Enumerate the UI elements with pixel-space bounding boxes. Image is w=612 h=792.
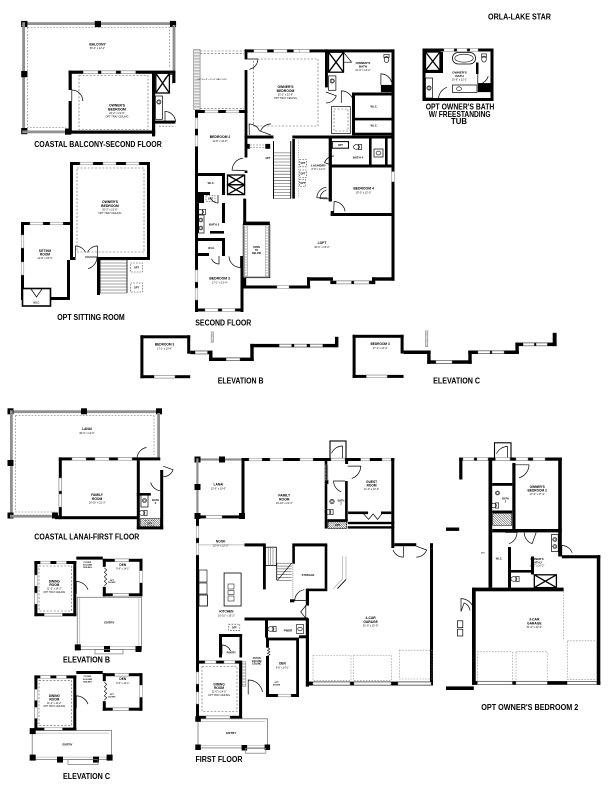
svg-text:DOORS: DOORS	[108, 697, 116, 699]
svg-text:8'-8" x 14'-0": 8'-8" x 14'-0"	[312, 168, 326, 171]
svg-text:VOLUME: VOLUME	[83, 679, 93, 681]
svg-text:10'-10" x 15'-2": 10'-10" x 15'-2"	[218, 614, 235, 617]
svg-text:31'-9" x 22'-9": 31'-9" x 22'-9"	[363, 625, 378, 628]
svg-text:ROOM: ROOM	[49, 698, 59, 702]
svg-text:ROOM: ROOM	[214, 686, 224, 690]
svg-text:ROOM: ROOM	[92, 497, 103, 501]
svg-text:BEDROOM 3: BEDROOM 3	[155, 343, 175, 347]
svg-text:15'-0" x 12'-0": 15'-0" x 12'-0"	[356, 192, 371, 195]
svg-text:NOOK: NOOK	[216, 540, 226, 544]
svg-text:36'-0" x 12'-0": 36'-0" x 12'-0"	[79, 432, 94, 435]
svg-text:PWDR: PWDR	[284, 628, 293, 632]
svg-text:FOYER: FOYER	[84, 676, 92, 678]
svg-text:11'-8" x 15'-0": 11'-8" x 15'-0"	[37, 257, 52, 260]
svg-text:17'-1" x 13'-4": 17'-1" x 13'-4"	[157, 347, 172, 350]
svg-text:BEDROOM 3: BEDROOM 3	[370, 342, 390, 346]
svg-text:OPT TRAY CEILING: OPT TRAY CEILING	[43, 591, 65, 594]
svg-text:ENTRY: ENTRY	[226, 731, 236, 735]
svg-text:COASTAL LANAI-FIRST FLOOR: COASTAL LANAI-FIRST FLOOR	[34, 532, 140, 542]
svg-text:W.I.C.: W.I.C.	[208, 182, 215, 185]
svg-text:OPT: OPT	[338, 144, 343, 147]
svg-text:BEDROOM: BEDROOM	[101, 204, 119, 208]
svg-text:12'-2" x 10'-2": 12'-2" x 10'-2"	[530, 564, 545, 567]
svg-text:TUB: TUB	[451, 116, 467, 126]
svg-text:30'-0" x 15'-0": 30'-0" x 15'-0"	[314, 246, 329, 249]
svg-text:FOYER: FOYER	[253, 658, 261, 660]
svg-text:OPT TRAY CEILING: OPT TRAY CEILING	[274, 97, 297, 100]
svg-text:KITCHEN: KITCHEN	[219, 610, 234, 614]
svg-text:31'-0" x 22'-0": 31'-0" x 22'-0"	[527, 626, 542, 629]
svg-text:SECOND FLOOR: SECOND FLOOR	[195, 317, 252, 327]
svg-text:LANAI: LANAI	[214, 483, 224, 487]
svg-text:9'-6" x 14'-1": 9'-6" x 14'-1"	[116, 682, 130, 685]
svg-text:19'-10" x 21'-3": 19'-10" x 21'-3"	[276, 502, 293, 505]
svg-text:9'-6" x 14'-1": 9'-6" x 14'-1"	[276, 666, 290, 669]
svg-text:W.I.C.: W.I.C.	[496, 558, 503, 561]
svg-text:ROOM: ROOM	[279, 497, 290, 501]
svg-text:OPT: OPT	[266, 157, 271, 160]
svg-text:BEDROOM: BEDROOM	[108, 107, 126, 111]
svg-text:OPT: OPT	[300, 182, 305, 185]
svg-text:ORLA-LAKE STAR: ORLA-LAKE STAR	[488, 13, 551, 22]
svg-text:BEDROOM 3: BEDROOM 3	[209, 277, 230, 281]
svg-text:ELEVATION B: ELEVATION B	[218, 375, 264, 385]
svg-text:OPT TRAY CEILING: OPT TRAY CEILING	[208, 694, 230, 697]
svg-text:VOLUME: VOLUME	[252, 661, 262, 663]
svg-text:BEDROOM 4: BEDROOM 4	[353, 187, 374, 191]
svg-text:OPT TRAY CEILING: OPT TRAY CEILING	[99, 212, 122, 215]
svg-text:STORAGE: STORAGE	[302, 573, 315, 577]
svg-text:ROOM: ROOM	[367, 484, 377, 488]
svg-text:OPT TRAY CEILING: OPT TRAY CEILING	[106, 116, 129, 119]
svg-text:VOLUME: VOLUME	[83, 565, 93, 567]
svg-text:DOORS: DOORS	[108, 582, 116, 584]
svg-text:ENTRY: ENTRY	[104, 621, 114, 625]
svg-text:ELEVATION B: ELEVATION B	[63, 655, 110, 665]
svg-text:BALCONY: BALCONY	[89, 42, 106, 46]
svg-text:10'-6" x 12'-2": 10'-6" x 12'-2"	[355, 69, 370, 72]
svg-text:OPT: OPT	[301, 162, 306, 165]
svg-text:9'-6" x 14'-1": 9'-6" x 14'-1"	[116, 567, 130, 570]
svg-text:CEILING: CEILING	[252, 664, 262, 666]
svg-text:OPT: OPT	[134, 287, 139, 290]
svg-text:GARAGE: GARAGE	[363, 620, 378, 624]
svg-text:CEILING: CEILING	[83, 567, 92, 569]
svg-text:FIRST FLOOR: FIRST FLOOR	[196, 754, 244, 764]
svg-text:PANTRY: PANTRY	[227, 651, 237, 654]
svg-text:OPT SITTING ROOM: OPT SITTING ROOM	[57, 312, 125, 322]
svg-text:BATH: BATH	[359, 65, 368, 69]
svg-text:OPT: OPT	[134, 267, 139, 270]
svg-text:56'-4" x 12'-2": 56'-4" x 12'-2"	[90, 47, 105, 50]
svg-text:17'-0" x 17'-2": 17'-0" x 17'-2"	[530, 493, 545, 496]
svg-text:LAUNDRY: LAUNDRY	[311, 164, 327, 168]
svg-text:MUD: MUD	[481, 553, 486, 555]
svg-text:FOYER: FOYER	[84, 562, 92, 564]
svg-text:OPT: OPT	[208, 198, 213, 201]
svg-text:BATH: BATH	[455, 74, 464, 78]
svg-text:12'-0" x 12'-0": 12'-0" x 12'-0"	[213, 544, 228, 547]
svg-text:OPT 10'-0" x 12'-0" BALCONY: OPT 10'-0" x 12'-0" BALCONY	[197, 78, 227, 81]
svg-text:ENTRY: ENTRY	[62, 742, 72, 746]
svg-text:OPT TRAY CEILING: OPT TRAY CEILING	[43, 705, 65, 708]
svg-text:BATH 4: BATH 4	[353, 156, 364, 160]
svg-text:10'-6" x 12'-2": 10'-6" x 12'-2"	[452, 79, 467, 82]
svg-text:COASTAL BALCONY-SECOND FLOOR: COASTAL BALCONY-SECOND FLOOR	[34, 139, 162, 149]
svg-text:GARAGE: GARAGE	[527, 621, 542, 625]
svg-text:11'-0" x 10'-0": 11'-0" x 10'-0"	[364, 488, 379, 491]
svg-text:ELEVATION C: ELEVATION C	[433, 375, 480, 385]
svg-text:DEN: DEN	[279, 662, 286, 666]
svg-text:DEN: DEN	[119, 677, 126, 681]
svg-text:LOFT: LOFT	[318, 241, 328, 245]
svg-text:W.I.C.: W.I.C.	[370, 124, 377, 128]
svg-text:W.I.C.: W.I.C.	[208, 247, 215, 250]
svg-text:BATH 3: BATH 3	[209, 223, 220, 227]
svg-text:LANAI: LANAI	[82, 427, 92, 431]
svg-text:OPT OWNER'S BEDROOM 2: OPT OWNER'S BEDROOM 2	[481, 702, 578, 712]
svg-text:W.I.C.: W.I.C.	[370, 105, 377, 109]
svg-text:11'-8" x 15'-8": 11'-8" x 15'-8"	[212, 140, 227, 143]
svg-text:CEILING: CEILING	[83, 682, 92, 684]
svg-text:BEDROOM 2: BEDROOM 2	[210, 135, 231, 139]
svg-text:ELEVATION C: ELEVATION C	[63, 771, 110, 781]
svg-text:17'-1" x 13'-4": 17'-1" x 13'-4"	[212, 282, 227, 285]
svg-text:BEDROOM 2: BEDROOM 2	[528, 489, 548, 493]
svg-text:DEN: DEN	[119, 563, 126, 567]
svg-text:OPT: OPT	[147, 522, 152, 525]
svg-text:19'-10" x 21'-3": 19'-10" x 21'-3"	[89, 502, 106, 505]
svg-text:DOORS: DOORS	[273, 684, 281, 686]
svg-text:12'-0" x 10'-0": 12'-0" x 10'-0"	[211, 487, 226, 490]
svg-text:W.I.C.: W.I.C.	[33, 303, 40, 305]
svg-text:17'-1" x 13'-4": 17'-1" x 13'-4"	[373, 347, 388, 350]
svg-text:BEDROOM: BEDROOM	[277, 89, 295, 93]
svg-text:ROOM: ROOM	[40, 253, 50, 257]
svg-text:OPT: OPT	[301, 173, 306, 176]
svg-text:OPT: OPT	[232, 626, 237, 629]
svg-text:ROOM: ROOM	[49, 583, 59, 587]
svg-text:BELOW: BELOW	[252, 252, 262, 255]
svg-text:OPT: OPT	[335, 524, 340, 527]
